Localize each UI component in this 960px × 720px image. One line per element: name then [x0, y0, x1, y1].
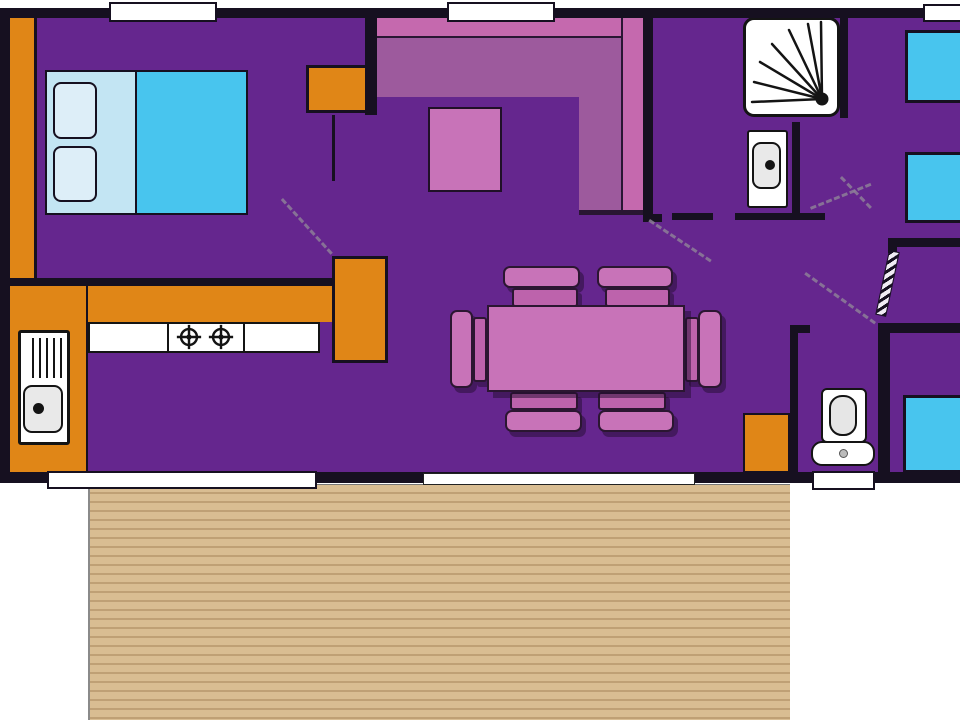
wall-bedroom1: [365, 18, 377, 115]
window: [109, 2, 217, 22]
wall-wc-left-foot: [790, 325, 810, 333]
sink-drain: [33, 403, 44, 414]
chair-seat: [685, 317, 699, 382]
wall-midroom-bottom: [878, 323, 960, 333]
wall-bathroom-left-foot: [653, 214, 662, 222]
chair-back: [505, 410, 582, 432]
toilet-tank: [821, 388, 867, 443]
wall-bathroom-left: [643, 10, 653, 222]
pillow: [53, 82, 97, 139]
mattress: [135, 72, 246, 213]
chair-back: [597, 266, 673, 288]
wall-wc-left: [790, 333, 798, 472]
chair-back: [450, 310, 473, 388]
chair-seat: [598, 392, 666, 410]
window: [923, 4, 960, 22]
bedroom-door-leaf: [332, 115, 335, 181]
single-bed: [905, 30, 960, 103]
wall-wc-right: [878, 333, 890, 472]
dining-table: [487, 305, 685, 392]
side-unit: [743, 413, 790, 473]
wall-bathroom-bottom: [735, 213, 825, 220]
wardrobe: [10, 18, 37, 283]
sofa-bottom-edge: [579, 210, 643, 215]
chair-seat: [510, 392, 578, 410]
wall-left: [0, 8, 10, 483]
terrace-door: [423, 473, 695, 485]
hob-burner-icon: [175, 323, 203, 351]
flush-button: [839, 449, 848, 458]
sofa-seat-top: [377, 38, 621, 97]
double-bed: [45, 70, 248, 215]
wall-bedroom2-bottom: [893, 238, 960, 247]
toilet-bowl: [829, 395, 857, 436]
sofa-seat-right: [579, 97, 621, 210]
basin-drain: [765, 160, 775, 170]
single-bed: [905, 152, 960, 223]
hob-burner-icon: [207, 323, 235, 351]
wall-bathroom-bottom: [672, 213, 713, 220]
worktop-divider: [243, 324, 245, 351]
wall-basin-stub: [792, 122, 800, 213]
chair-back: [598, 410, 674, 432]
worktop: [88, 322, 320, 353]
washbasin: [747, 130, 788, 208]
chair-seat: [473, 317, 487, 382]
kitchen-sink: [18, 330, 70, 445]
chair-back: [698, 310, 722, 388]
toilet-base: [811, 441, 875, 466]
pillow: [53, 146, 97, 202]
sofa-back-right: [621, 18, 643, 215]
terrace-deck: [88, 484, 790, 720]
floor-plan: [0, 0, 960, 720]
dresser: [306, 65, 373, 113]
window: [447, 2, 555, 22]
wall-kitchen: [10, 278, 332, 286]
single-bed: [903, 395, 960, 473]
fridge: [332, 256, 388, 363]
chair-back: [503, 266, 580, 288]
shower-tray: [743, 17, 840, 117]
wc-window: [812, 471, 875, 490]
coffee-table: [428, 107, 502, 192]
kitchen-counter-top: [88, 286, 335, 322]
worktop-divider: [167, 324, 169, 351]
wall-bathroom-right: [840, 10, 848, 118]
sliding-bay-door: [47, 471, 317, 489]
